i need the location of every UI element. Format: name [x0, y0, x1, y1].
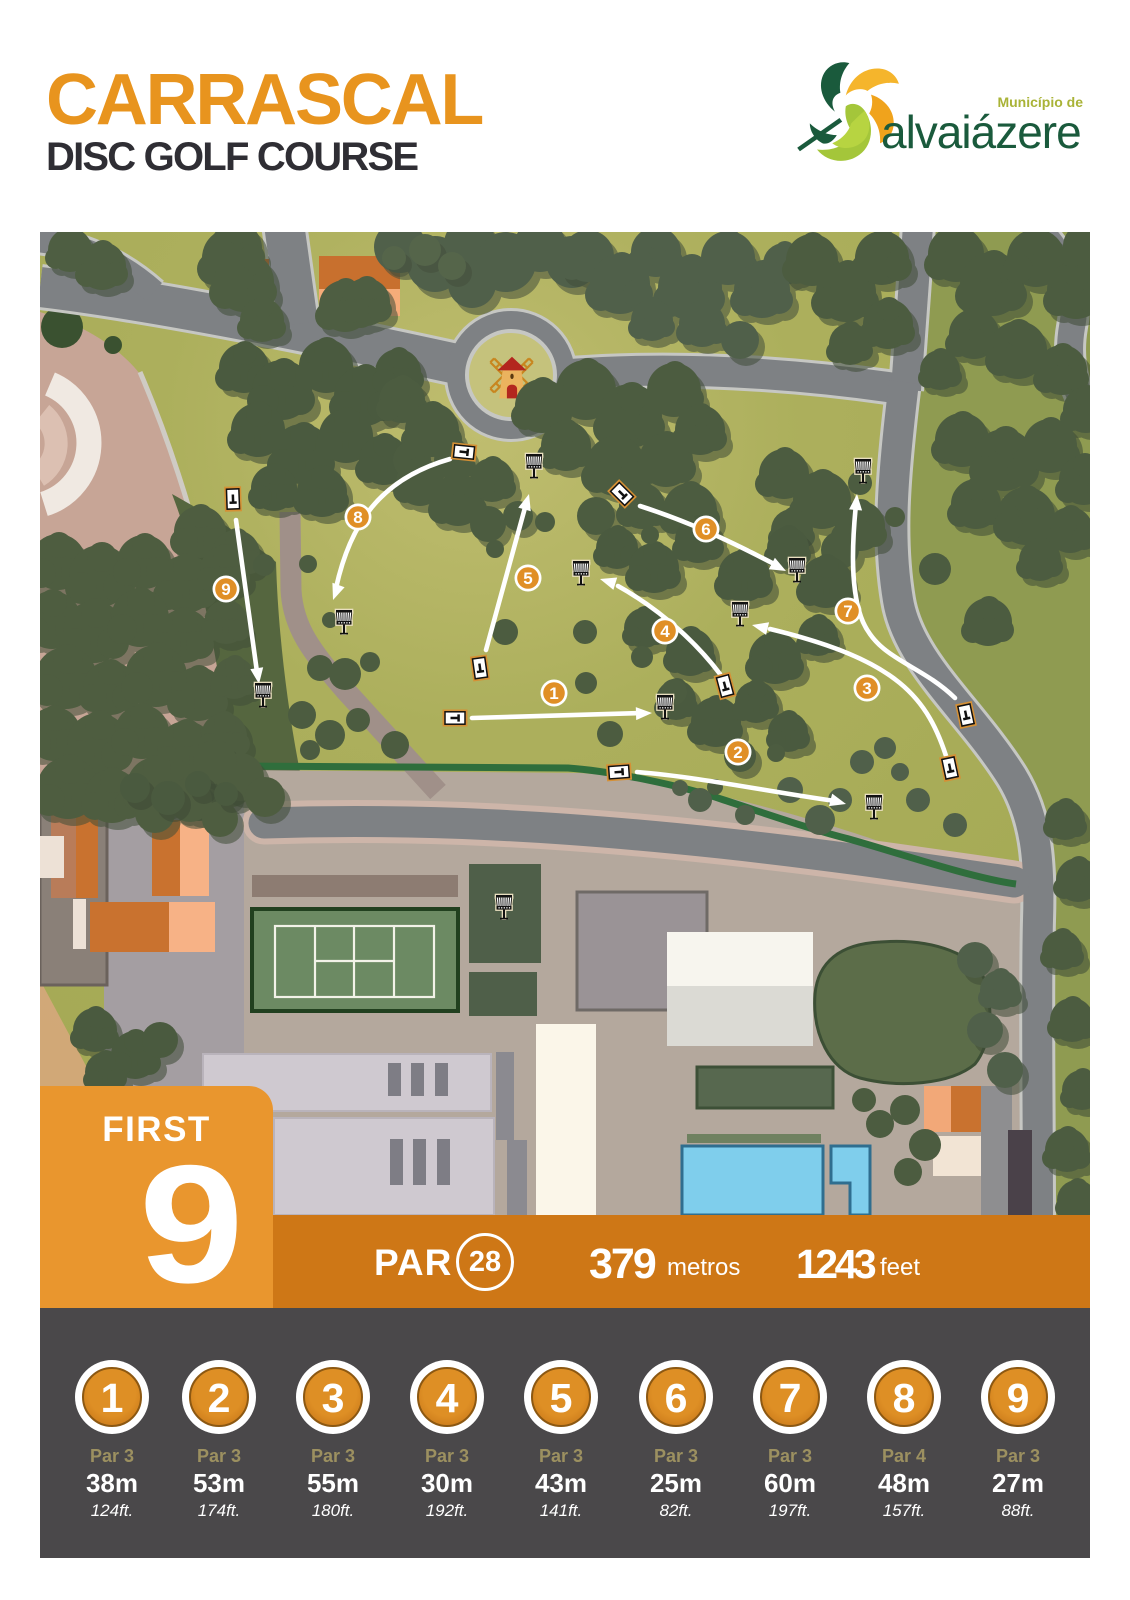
svg-text:7: 7 [843, 602, 852, 621]
svg-text:alvaiázere: alvaiázere [881, 106, 1081, 158]
svg-text:8: 8 [353, 508, 362, 527]
svg-text:2: 2 [733, 743, 742, 762]
svg-text:4: 4 [660, 622, 670, 641]
svg-text:1: 1 [549, 684, 558, 703]
svg-text:5: 5 [523, 569, 532, 588]
svg-text:3: 3 [862, 679, 871, 698]
svg-text:6: 6 [701, 520, 710, 539]
svg-text:9: 9 [221, 580, 230, 599]
